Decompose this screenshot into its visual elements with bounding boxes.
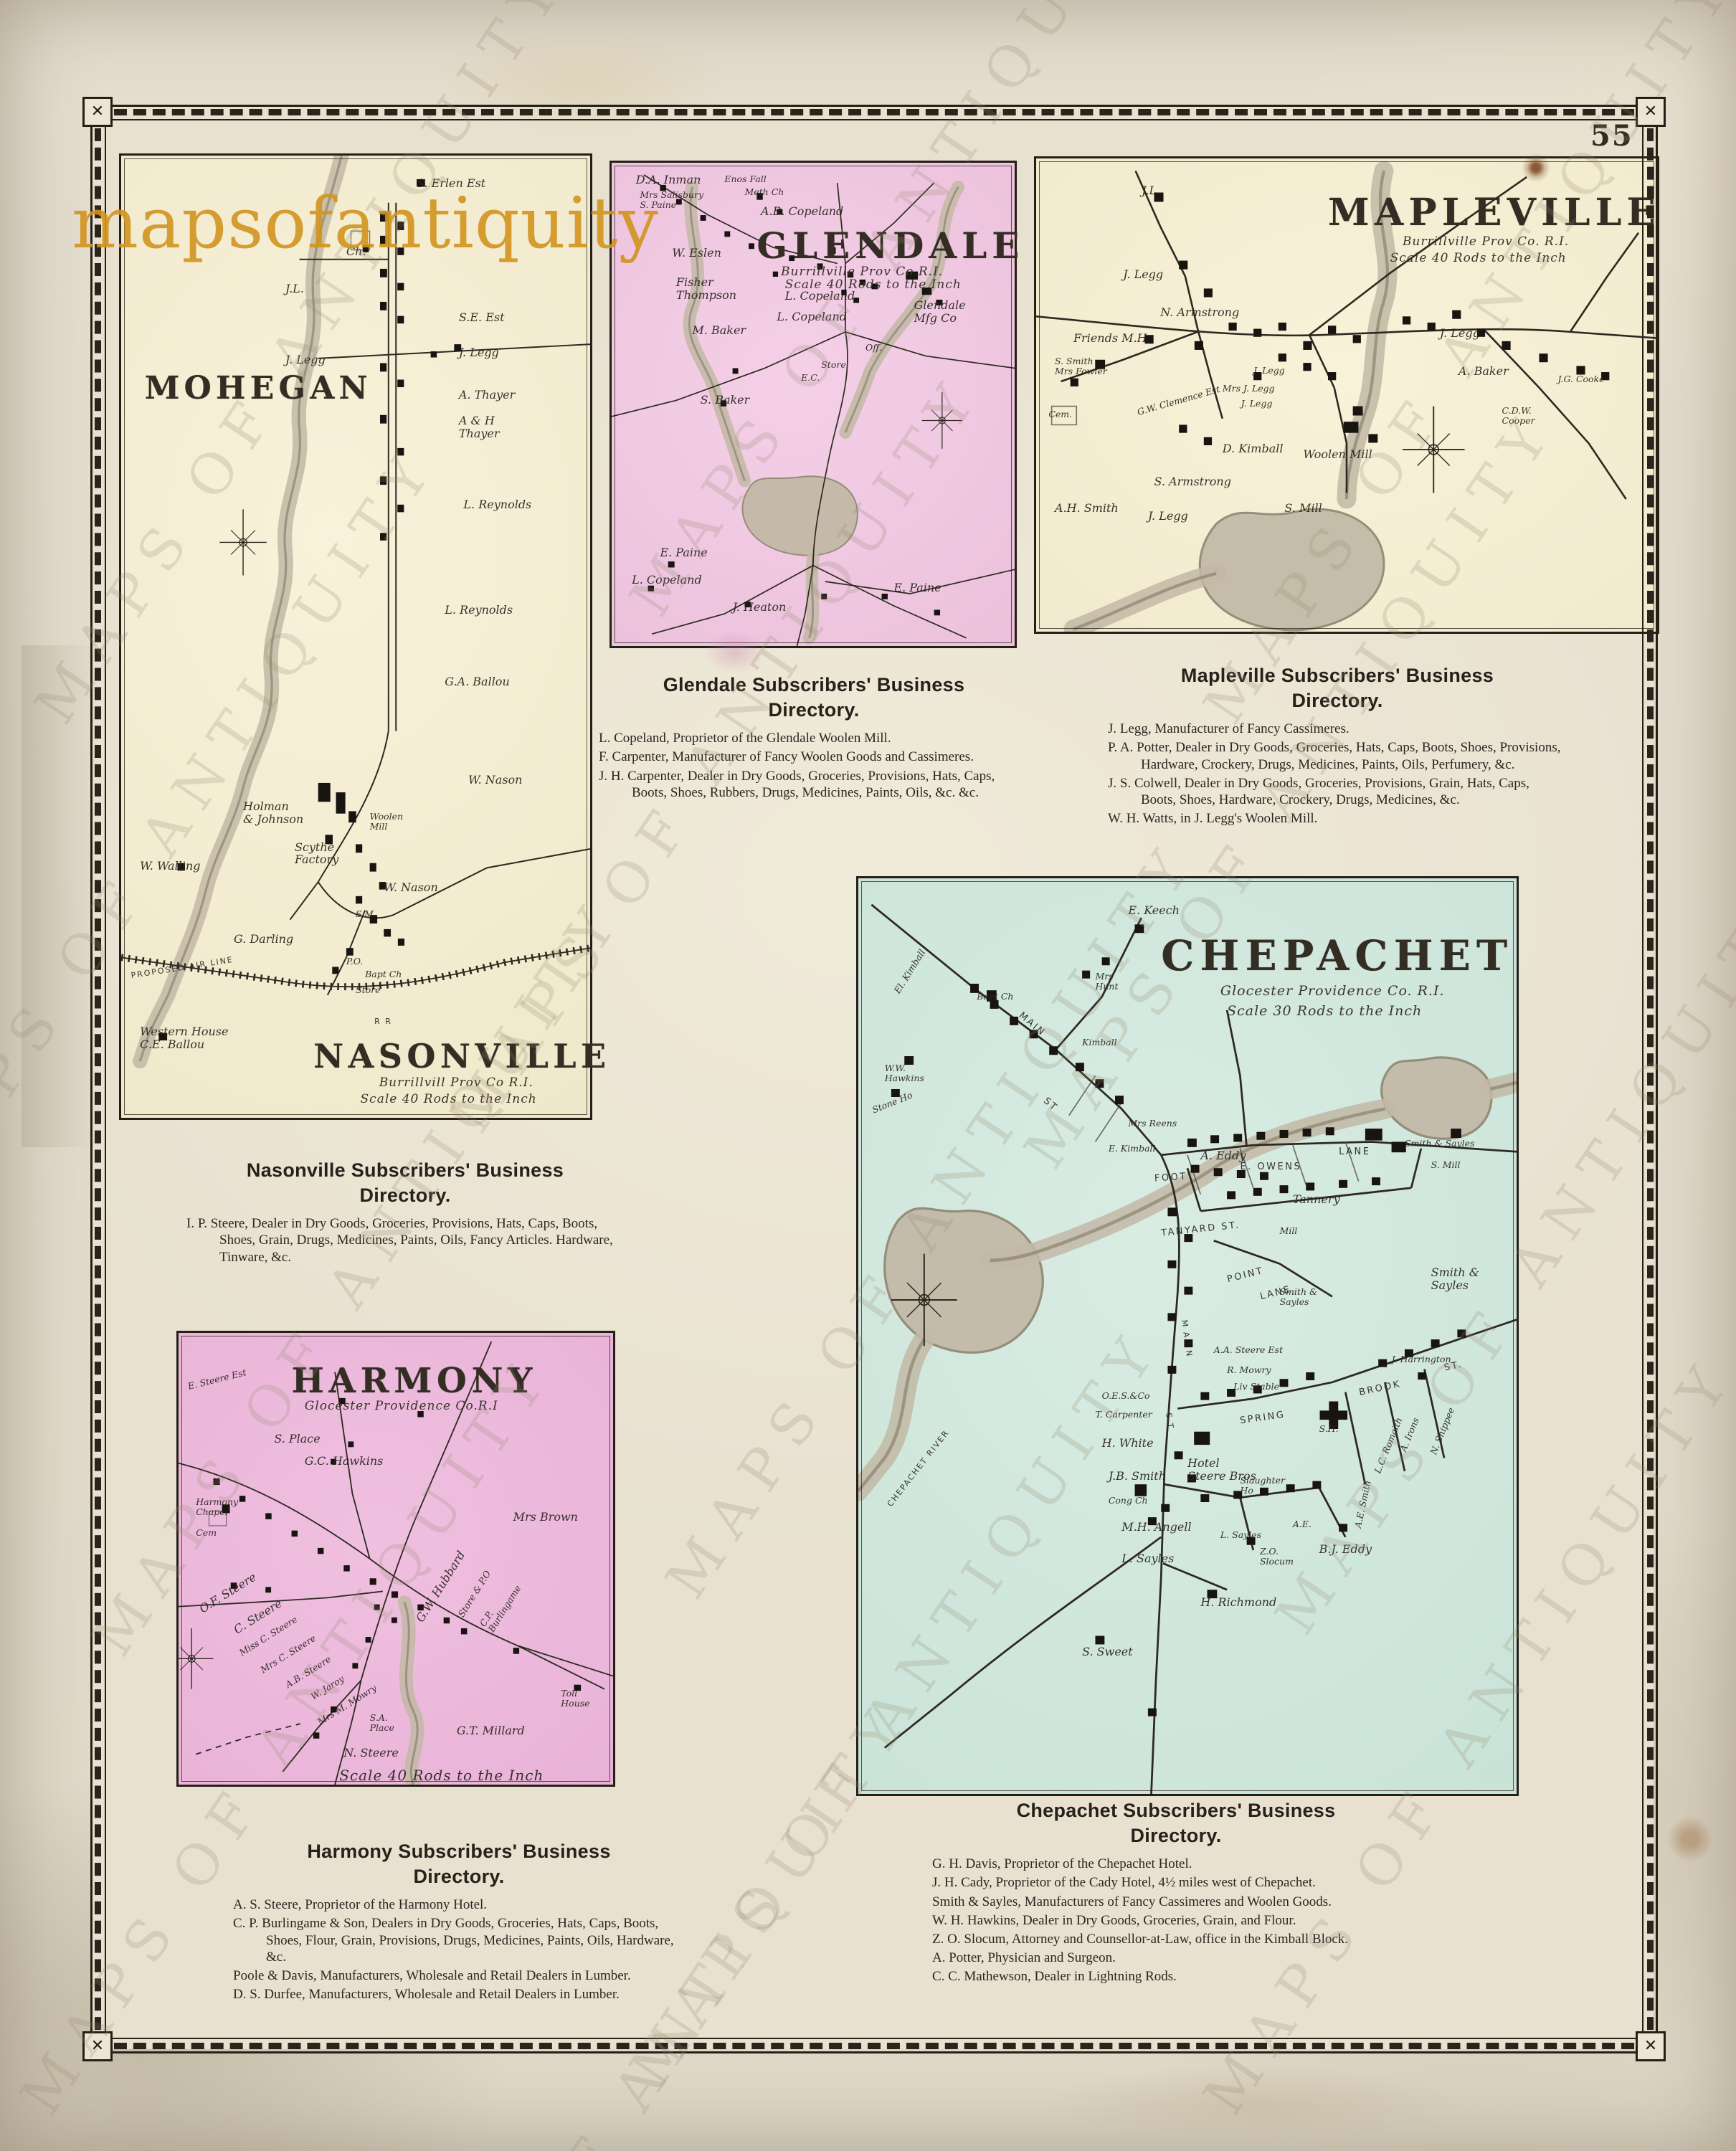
map-label: E. Paine <box>660 546 707 559</box>
directory-entry: D. S. Durfee, Manufacturers, Wholesale a… <box>233 1986 685 2003</box>
map-label: S T <box>1164 1412 1175 1430</box>
map-title: MOHEGAN <box>145 370 372 407</box>
map-label: Z.O. Slocum <box>1260 1547 1294 1567</box>
map-label: G.C. Hawkins <box>305 1455 384 1468</box>
map-label: L. Reynolds <box>463 498 531 511</box>
map-label: S. Baker <box>701 394 750 407</box>
map-label: L. Sayles <box>1121 1552 1174 1565</box>
directory-heading: Nasonville Subscribers' BusinessDirector… <box>186 1158 624 1208</box>
map-label: Holman & Johnson <box>243 800 303 826</box>
map-subtitle: Scale 30 Rods to the Inch <box>1227 1003 1422 1019</box>
map-label: G. Darling <box>234 933 293 946</box>
map-label: D. Kimball <box>1223 442 1284 455</box>
map-label: Smith & Sayles <box>1431 1266 1479 1292</box>
map-label: Enos Fall <box>724 174 766 184</box>
directory-heading: Mapleville Subscribers' BusinessDirector… <box>1108 663 1567 713</box>
map-panel-mohegan-nasonville: MOHEGANNASONVILLEBurrillvill Prov Co R.I… <box>119 153 592 1120</box>
map-label: W. Nason <box>384 881 438 894</box>
map-label: S. Mill <box>1284 502 1322 515</box>
map-label: J. Legg <box>1148 510 1188 523</box>
map-label: Scythe Factory <box>295 841 338 867</box>
map-label: T. Carpenter <box>1095 1410 1152 1420</box>
map-label: S. Erlen Est <box>417 177 485 190</box>
map-subtitle: Scale 40 Rods to the Inch <box>1390 251 1567 265</box>
directory-entry: J. H. Cady, Proprietor of the Cady Hotel… <box>932 1874 1420 1891</box>
map-label: Mrs J. Legg <box>1223 384 1275 394</box>
map-label: Smith & Sayles <box>1405 1139 1474 1149</box>
map-subtitle: Scale 40 Rods to the Inch <box>361 1092 537 1106</box>
directory-heading-line: Directory. <box>1108 688 1567 713</box>
map-label: W. Nason <box>468 774 523 787</box>
directory-entries: J. Legg, Manufacturer of Fancy Cassimere… <box>1108 721 1567 827</box>
directory-entry: J. Legg, Manufacturer of Fancy Cassimere… <box>1108 721 1567 737</box>
map-label: M.H. Angell <box>1121 1521 1191 1534</box>
directory-entry: F. Carpenter, Manufacturer of Fancy Wool… <box>599 749 1029 765</box>
map-label: H. Richmond <box>1200 1596 1276 1609</box>
map-label: H. White <box>1102 1437 1154 1450</box>
map-label: A. Thayer <box>459 389 515 402</box>
map-panel-chepachet: CHEPACHETGlocester Providence Co. R.I.Sc… <box>856 876 1519 1796</box>
map-subtitle: Burrillville Prov Co. R.I. <box>1403 234 1569 249</box>
map-label: L. Copeland <box>785 290 855 303</box>
map-label: S. Mill <box>1431 1160 1461 1170</box>
map-label: J. Legg <box>459 346 499 359</box>
map-label: Glendale Mfg Co <box>914 299 966 325</box>
map-subtitle: Glocester Providence Co. R.I. <box>1220 983 1445 999</box>
directory-entry: Z. O. Slocum, Attorney and Counsellor-at… <box>932 1931 1420 1947</box>
map-label: Scale 40 Rods to the Inch <box>339 1767 544 1783</box>
map-label: Toll House <box>561 1689 589 1709</box>
map-label: Mrs Brown <box>513 1511 578 1524</box>
map-label: Meth Ch <box>744 187 784 197</box>
directory-entry: G. H. Davis, Proprietor of the Chepachet… <box>932 1856 1420 1872</box>
map-label: J.L. <box>285 282 304 295</box>
directory-harmony: Harmony Subscribers' BusinessDirectory.A… <box>233 1839 685 2003</box>
directory-entry: C. C. Mathewson, Dealer in Lightning Rod… <box>932 1968 1420 1985</box>
map-panel-mapleville: MAPLEVILLEBurrillville Prov Co. R.I.Scal… <box>1034 156 1659 634</box>
map-label: Store <box>821 360 846 370</box>
map-label: P.O. <box>346 956 363 967</box>
directory-entry: A. Potter, Physician and Surgeon. <box>932 1950 1420 1966</box>
directory-entry: L. Copeland, Proprietor of the Glendale … <box>599 730 1029 746</box>
map-label: S. Sweet <box>1082 1646 1133 1658</box>
directory-heading-line: Harmony Subscribers' Business <box>233 1839 685 1864</box>
map-title: CHEPACHET <box>1161 931 1513 980</box>
directory-heading: Harmony Subscribers' BusinessDirectory. <box>233 1839 685 1889</box>
map-label: Harmony Chapel <box>196 1497 238 1517</box>
map-label: A. Baker <box>1458 365 1509 378</box>
atlas-page: MOHEGANNASONVILLEBurrillvill Prov Co R.I… <box>0 0 1736 2151</box>
directory-entry: Poole & Davis, Manufacturers, Wholesale … <box>233 1967 685 1984</box>
map-label: J. Heaton <box>733 601 787 614</box>
directory-heading-line: Directory. <box>932 1823 1420 1848</box>
map-label: A.B. Copeland <box>761 205 843 218</box>
map-label: Cong Ch <box>1109 1496 1148 1506</box>
directory-entries: A. S. Steere, Proprietor of the Harmony … <box>233 1896 685 2003</box>
map-label: Kimball <box>1082 1037 1117 1048</box>
map-label: J. Legg <box>1241 399 1273 409</box>
map-label: Ch. <box>346 245 366 258</box>
map-label: R R <box>374 1017 392 1026</box>
directory-glendale: Glendale Subscribers' BusinessDirectory.… <box>599 673 1029 801</box>
map-label: Fisher Thompson <box>676 276 736 302</box>
map-label: Slaughter Ho <box>1240 1476 1285 1496</box>
directory-entry: P. A. Potter, Dealer in Dry Goods, Groce… <box>1108 739 1567 772</box>
map-label: C.D.W. Cooper <box>1502 406 1535 426</box>
map-label: LANE <box>1339 1147 1370 1158</box>
directory-entry: J. H. Carpenter, Dealer in Dry Goods, Gr… <box>599 768 1029 801</box>
map-label: M. Baker <box>692 324 746 337</box>
map-label: A. Eddy <box>1200 1149 1246 1162</box>
directory-heading-line: Directory. <box>233 1864 685 1889</box>
directory-entry: Smith & Sayles, Manufacturers of Fancy C… <box>932 1894 1420 1910</box>
map-label: D.A. Inman <box>636 174 701 186</box>
map-label: B.J. Eddy <box>1319 1543 1372 1556</box>
map-panel-glendale: GLENDALEBurrillville Prov Co R.I.Scale 4… <box>610 161 1017 648</box>
map-subtitle: Burrillville Prov Co R.I. <box>781 265 943 279</box>
map-panel-harmony: HARMONYGlocester Providence Co.R.IE. Ste… <box>176 1331 615 1787</box>
directory-mapleville: Mapleville Subscribers' BusinessDirector… <box>1108 663 1567 827</box>
map-subtitle: Burrillvill Prov Co R.I. <box>379 1075 533 1090</box>
map-label: S.A. Place <box>370 1713 394 1733</box>
map-label: N. Steere <box>343 1747 399 1760</box>
map-label: A & H Thayer <box>459 414 500 440</box>
map-label: S. Armstrong <box>1154 475 1231 488</box>
map-label: Mill <box>1280 1226 1298 1236</box>
map-label: Liv Stable <box>1233 1382 1279 1392</box>
age-blotch <box>1040 2065 1470 2144</box>
map-label: A.E. <box>1293 1519 1312 1529</box>
directory-heading-line: Chepachet Subscribers' Business <box>932 1798 1420 1823</box>
map-subtitle: Glocester Providence Co.R.I <box>305 1399 498 1413</box>
map-label: Smith & Sayles <box>1280 1287 1318 1307</box>
map-label: L. Copeland <box>777 310 847 323</box>
directory-heading-line: Nasonville Subscribers' Business <box>186 1158 624 1183</box>
map-label: A.A. Steere Est <box>1214 1345 1283 1355</box>
directory-entry: W. H. Hawkins, Dealer in Dry Goods, Groc… <box>932 1912 1420 1929</box>
edge-shading <box>22 645 100 1147</box>
directory-nasonville: Nasonville Subscribers' BusinessDirector… <box>186 1158 624 1266</box>
map-label: E. Paine <box>893 581 941 594</box>
directory-heading-line: Directory. <box>599 698 1029 723</box>
map-label: L. Sayles <box>1220 1530 1261 1540</box>
map-label: Mrs Hunt <box>1095 972 1118 992</box>
map-label: E. Keech <box>1128 904 1180 917</box>
map-label: W.W. Hawkins <box>885 1063 924 1083</box>
map-label: W. Walling <box>140 860 200 873</box>
page-number: 55 <box>1590 119 1633 153</box>
map-label: Bapt Ch <box>977 992 1013 1002</box>
directory-entry: W. H. Watts, in J. Legg's Woolen Mill. <box>1108 810 1567 827</box>
map-label: S.E. Est <box>459 311 505 324</box>
map-label: R. Mowry <box>1227 1365 1271 1375</box>
map-label: L. Copeland <box>632 574 702 587</box>
map-art-mohegan <box>121 156 590 1118</box>
map-title: GLENDALE <box>756 224 1024 267</box>
directory-entry: I. P. Steere, Dealer in Dry Goods, Groce… <box>186 1215 624 1266</box>
directory-heading: Glendale Subscribers' BusinessDirectory. <box>599 673 1029 723</box>
map-label: G.T. Millard <box>457 1724 525 1737</box>
map-label: Woolen Mill <box>370 812 404 832</box>
map-label: J.G. Cooke <box>1557 374 1604 384</box>
map-label: J. Legg <box>1440 327 1480 340</box>
map-title: NASONVILLE <box>313 1037 610 1075</box>
map-label: O.E.S.&Co <box>1102 1391 1150 1401</box>
directory-heading: Chepachet Subscribers' BusinessDirectory… <box>932 1798 1420 1848</box>
map-label: Western House C.E. Ballou <box>140 1025 228 1051</box>
map-label: N. Armstrong <box>1160 306 1239 319</box>
map-label: S. Place <box>274 1433 320 1445</box>
map-label: E. OWENS <box>1240 1162 1301 1173</box>
map-label: L. Reynolds <box>445 604 513 617</box>
directory-entry: J. S. Colwell, Dealer in Dry Goods, Groc… <box>1108 775 1567 808</box>
map-label: G.A. Ballou <box>445 675 510 688</box>
directory-entries: L. Copeland, Proprietor of the Glendale … <box>599 730 1029 801</box>
directory-heading-line: Glendale Subscribers' Business <box>599 673 1029 698</box>
directory-entry: C. P. Burlingame & Son, Dealers in Dry G… <box>233 1915 685 1965</box>
directory-heading-line: Mapleville Subscribers' Business <box>1108 663 1567 688</box>
map-label: J. Legg <box>1253 366 1285 376</box>
map-title: MAPLEVILLE <box>1328 191 1660 234</box>
directory-entry: A. S. Steere, Proprietor of the Harmony … <box>233 1896 685 1913</box>
map-label: A.H. Smith <box>1055 502 1119 515</box>
map-label: E.C. <box>801 373 820 383</box>
map-label: Cem <box>196 1528 217 1538</box>
map-label: Bapt Ch <box>365 969 402 979</box>
map-label: S.H. <box>1319 1424 1339 1434</box>
map-label: J. Legg <box>285 353 326 366</box>
map-label: S. Smith Mrs Fowler <box>1055 356 1107 376</box>
map-label: Tannery <box>1293 1193 1340 1206</box>
map-label: Mrs Reens <box>1128 1119 1177 1129</box>
map-label: Off. <box>865 343 882 353</box>
map-label: Store <box>356 985 381 995</box>
directory-chepachet: Chepachet Subscribers' BusinessDirectory… <box>932 1798 1420 1985</box>
map-label: Cem. <box>1048 409 1072 419</box>
map-label: Friends M.H. <box>1073 332 1151 345</box>
map-label: Mrs Salisbury S. Paine <box>640 190 703 210</box>
age-spot <box>1665 1814 1715 1864</box>
map-title: HARMONY <box>292 1361 538 1401</box>
directory-entries: I. P. Steere, Dealer in Dry Goods, Groce… <box>186 1215 624 1266</box>
map-label: S.M. <box>356 909 376 919</box>
map-label: J.B. Smith <box>1109 1470 1166 1483</box>
map-label: E. Kimball <box>1109 1144 1156 1154</box>
map-label: J. Legg <box>1123 268 1163 281</box>
directory-entries: G. H. Davis, Proprietor of the Chepachet… <box>932 1856 1420 1985</box>
map-label: Woolen Mill <box>1303 448 1372 461</box>
map-label: J. Harrington <box>1392 1354 1451 1364</box>
directory-heading-line: Directory. <box>186 1183 624 1208</box>
map-label: W. Eslen <box>672 247 721 260</box>
map-label: J.L. <box>1142 184 1160 197</box>
